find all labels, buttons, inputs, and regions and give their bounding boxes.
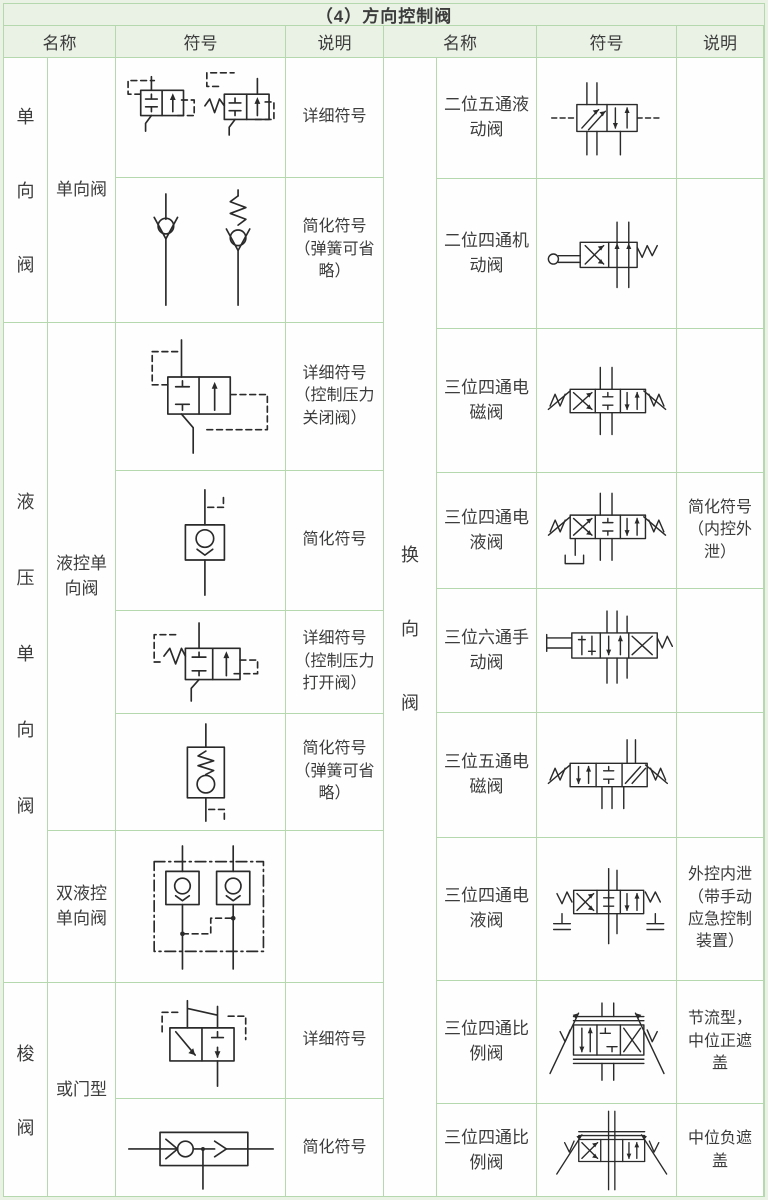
symbol-cell xyxy=(537,179,677,329)
header-name-right: 名称 xyxy=(384,26,537,58)
group-check-valve: 单 向 阀 xyxy=(4,58,48,323)
symbol-check-valve-simplified xyxy=(121,186,281,315)
group-hydraulic-check-valve: 液 压 单 向 阀 xyxy=(4,323,48,983)
header-name-left: 名称 xyxy=(4,26,116,58)
desc-cell: 外控内泄（带手动应急控制装置） xyxy=(677,838,764,981)
desc-cell: 简化符号（弹簧可省略） xyxy=(286,178,384,323)
symbol-pilot-check-simplified-spring xyxy=(121,720,281,825)
valve-name: 三位四通比例阀 xyxy=(437,1104,537,1197)
desc-cell: 节流型，中位正遮盖 xyxy=(677,981,764,1104)
symbol-valve-3pos-4way-electrohydraulic xyxy=(540,480,674,582)
symbol-cell xyxy=(116,471,286,611)
group-directional-valve: 换 向 阀 xyxy=(384,58,437,1197)
table-body: 名称 符号 说明 单 向 阀 液 压 单 向 阀 梭 阀 xyxy=(4,26,764,1196)
symbol-check-valve-detailed xyxy=(121,65,281,170)
symbol-cell xyxy=(537,838,677,981)
right-half: 名称 符号 说明 换 向 阀 二位五通液动阀 二位四通机动阀 三位四通电磁阀 三… xyxy=(384,26,764,1196)
desc-cell: 中位负遮盖 xyxy=(677,1104,764,1197)
symbol-cell xyxy=(116,714,286,831)
valve-symbol-table: （4）方向控制阀 名称 符号 说明 单 向 阀 液 压 单 向 xyxy=(3,3,765,1197)
symbol-pilot-check-detailed-close xyxy=(121,330,281,463)
symbol-cell xyxy=(537,1104,677,1197)
desc-cell xyxy=(677,713,764,838)
header-desc-right: 说明 xyxy=(677,26,764,58)
symbol-cell xyxy=(537,713,677,838)
desc-cell: 详细符号 xyxy=(286,58,384,178)
symbol-cell xyxy=(116,983,286,1099)
desc-cell xyxy=(677,589,764,713)
desc-cell: 简化符号 xyxy=(286,1099,384,1197)
subname-or-gate: 或门型 xyxy=(48,983,116,1197)
subname-double-pilot-check-valve: 双液控单向阀 xyxy=(48,831,116,983)
symbol-cell xyxy=(116,611,286,714)
desc-cell: 简化符号（内控外泄） xyxy=(677,473,764,589)
symbol-cell xyxy=(537,981,677,1104)
symbol-shuttle-valve-detailed xyxy=(121,989,281,1092)
left-half: 名称 符号 说明 单 向 阀 液 压 单 向 阀 梭 阀 xyxy=(4,26,384,1196)
valve-name: 三位四通电液阀 xyxy=(437,838,537,981)
symbol-valve-3pos-4way-proportional-negative xyxy=(544,1105,670,1196)
desc-cell: 详细符号 xyxy=(286,983,384,1099)
valve-name: 三位四通比例阀 xyxy=(437,981,537,1104)
desc-cell: 简化符号 xyxy=(286,471,384,611)
header-symbol-left: 符号 xyxy=(116,26,286,58)
symbol-valve-2pos-4way-mechanical xyxy=(540,207,674,301)
table-title: （4）方向控制阀 xyxy=(4,4,764,26)
page: （4）方向控制阀 名称 符号 说明 单 向 阀 液 压 单 向 xyxy=(0,0,768,1200)
desc-cell: 详细符号（控制压力关闭阀） xyxy=(286,323,384,471)
symbol-cell xyxy=(537,58,677,179)
symbol-cell xyxy=(537,473,677,589)
desc-cell xyxy=(286,831,384,983)
symbol-cell xyxy=(116,323,286,471)
symbol-shuttle-valve-simplified xyxy=(121,1103,281,1193)
valve-name: 三位六通手动阀 xyxy=(437,589,537,713)
header-desc-left: 说明 xyxy=(286,26,384,58)
desc-cell xyxy=(677,179,764,329)
valve-name: 二位四通机动阀 xyxy=(437,179,537,329)
symbol-valve-3pos-4way-solenoid xyxy=(540,354,674,448)
symbol-valve-3pos-5way-solenoid xyxy=(540,728,674,822)
symbol-cell xyxy=(537,589,677,713)
header-symbol-right: 符号 xyxy=(537,26,677,58)
desc-cell: 简化符号（弹簧可省略） xyxy=(286,714,384,831)
symbol-double-pilot-check xyxy=(121,838,281,975)
desc-cell: 详细符号（控制压力打开阀） xyxy=(286,611,384,714)
symbol-valve-3pos-4way-proportional-throttle xyxy=(540,993,674,1092)
desc-cell xyxy=(677,58,764,179)
symbol-valve-3pos-4way-electrohydraulic-manual-override xyxy=(540,857,674,962)
subname-pilot-check-valve: 液控单向阀 xyxy=(48,323,116,831)
valve-name: 三位四通电磁阀 xyxy=(437,329,537,473)
symbol-cell xyxy=(537,329,677,473)
symbol-cell xyxy=(116,1099,286,1197)
valve-name: 三位五通电磁阀 xyxy=(437,713,537,838)
group-shuttle-valve: 梭 阀 xyxy=(4,983,48,1197)
symbol-pilot-check-simplified xyxy=(121,478,281,603)
symbol-cell xyxy=(116,831,286,983)
symbol-valve-3pos-6way-manual xyxy=(540,601,674,700)
symbol-valve-2pos-5way-hydraulic xyxy=(540,71,674,165)
symbol-cell xyxy=(116,178,286,323)
desc-cell xyxy=(677,329,764,473)
symbol-cell xyxy=(116,58,286,178)
subname-check-valve: 单向阀 xyxy=(48,58,116,323)
valve-name: 三位四通电液阀 xyxy=(437,473,537,589)
symbol-pilot-check-detailed-open xyxy=(121,615,281,709)
valve-name: 二位五通液动阀 xyxy=(437,58,537,179)
